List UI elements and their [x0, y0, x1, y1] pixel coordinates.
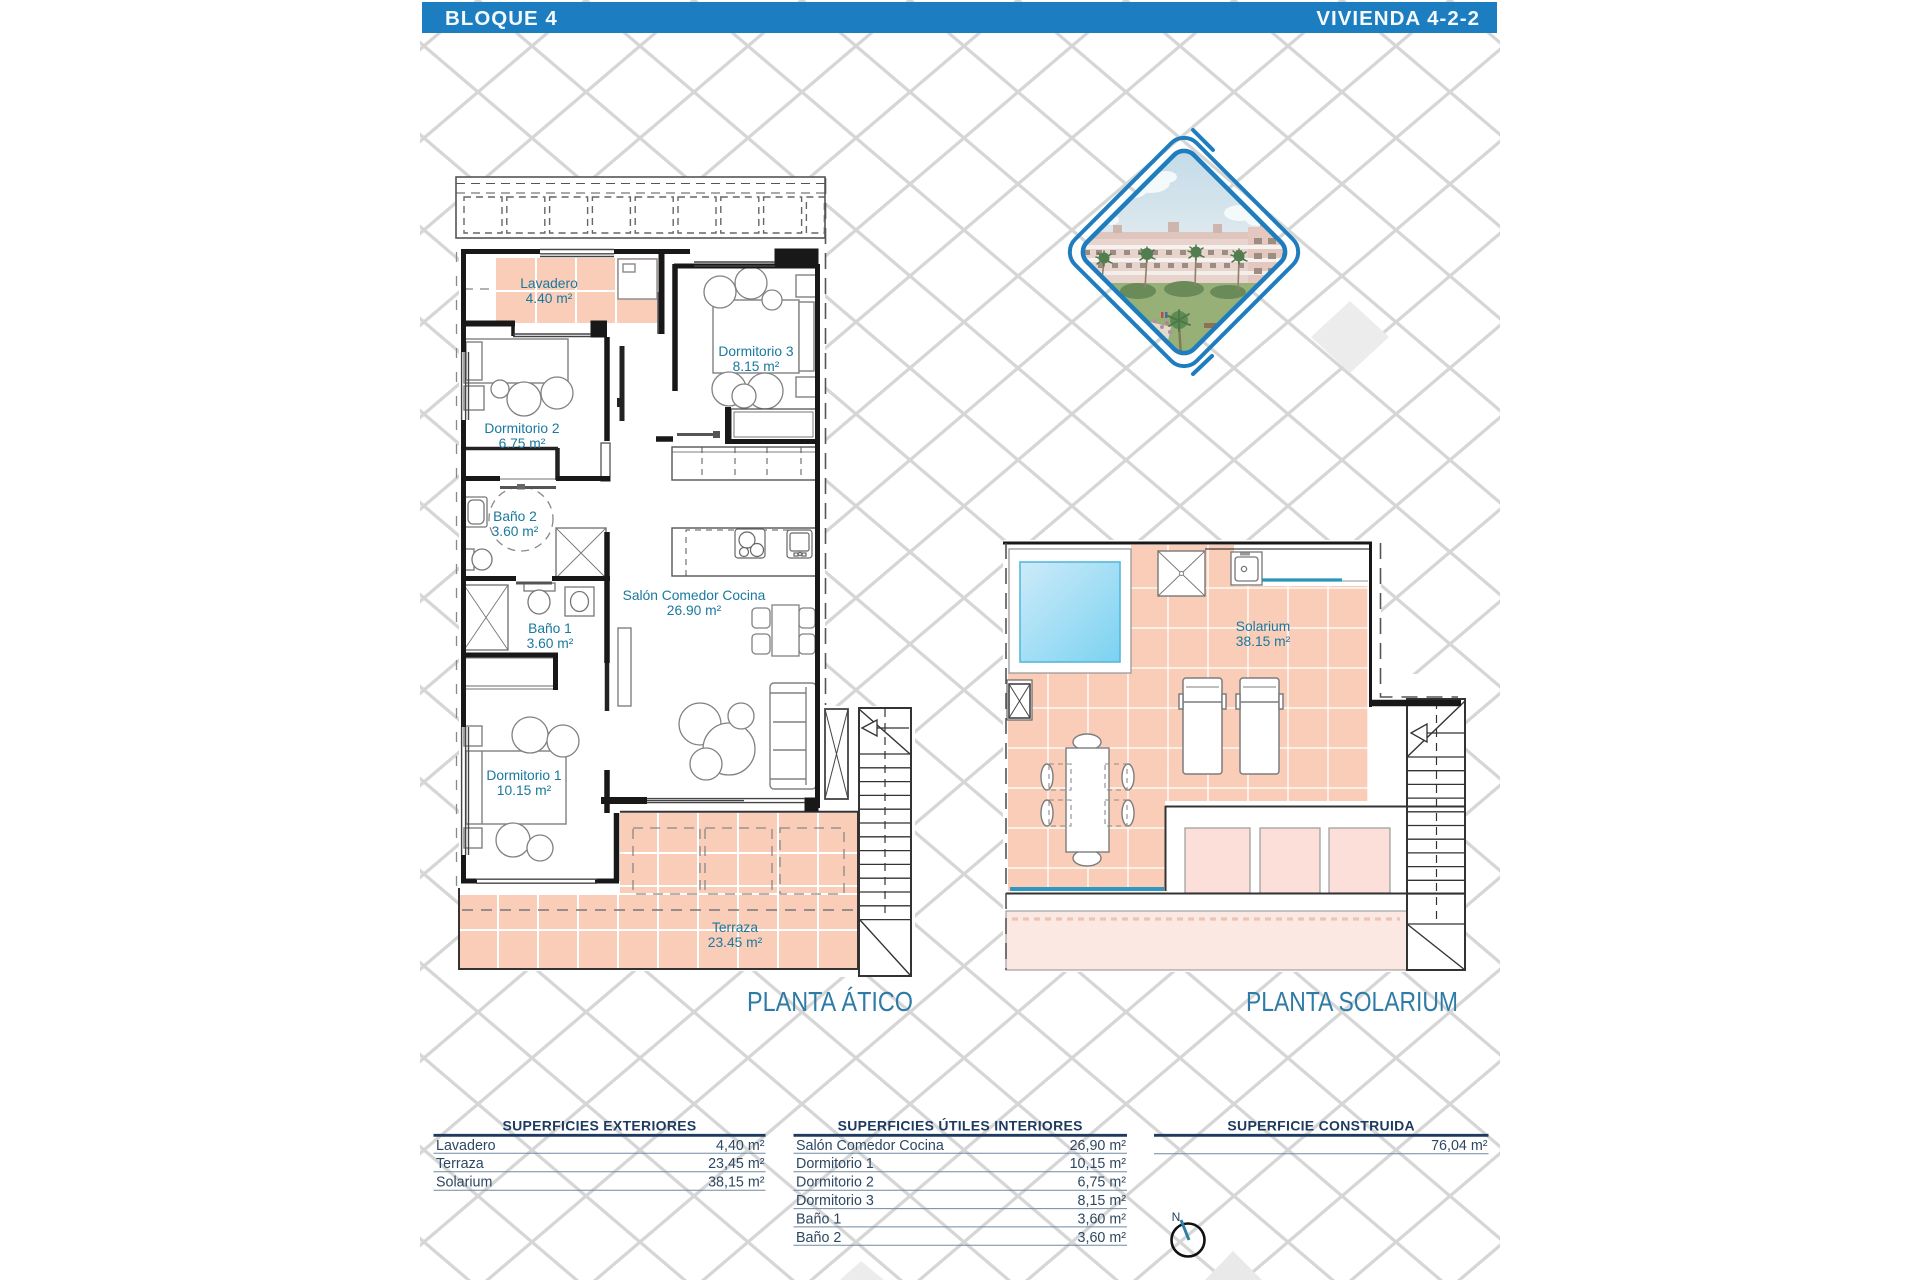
svg-text:Baño 2: Baño 2 — [796, 1230, 841, 1246]
svg-text:PLANTA ÁTICO: PLANTA ÁTICO — [747, 986, 913, 1017]
svg-text:Salón Comedor Cocina: Salón Comedor Cocina — [623, 588, 766, 603]
svg-text:3,60 m²: 3,60 m² — [1078, 1211, 1127, 1227]
svg-text:8,15 m²: 8,15 m² — [1078, 1193, 1127, 1209]
svg-text:SUPERFICIES ÚTILES INTERIORES: SUPERFICIES ÚTILES INTERIORES — [838, 1117, 1083, 1134]
svg-text:Dormitorio 3: Dormitorio 3 — [796, 1193, 874, 1209]
svg-text:6.75 m²: 6.75 m² — [499, 436, 546, 451]
svg-text:Solarium: Solarium — [1236, 619, 1290, 634]
svg-text:Dormitorio 2: Dormitorio 2 — [796, 1175, 874, 1191]
svg-text:SUPERFICIES EXTERIORES: SUPERFICIES EXTERIORES — [502, 1118, 696, 1134]
svg-text:Baño 2: Baño 2 — [493, 509, 537, 524]
svg-text:4,40 m²: 4,40 m² — [716, 1138, 765, 1154]
svg-text:SUPERFICIE CONSTRUIDA: SUPERFICIE CONSTRUIDA — [1227, 1118, 1415, 1134]
svg-text:Dormitorio 1: Dormitorio 1 — [796, 1156, 874, 1172]
svg-text:10,15 m²: 10,15 m² — [1070, 1156, 1127, 1172]
svg-text:26.90 m²: 26.90 m² — [667, 603, 722, 618]
svg-text:3.60 m²: 3.60 m² — [527, 636, 574, 651]
svg-text:Baño 1: Baño 1 — [796, 1211, 841, 1227]
svg-text:10.15 m²: 10.15 m² — [497, 783, 552, 798]
svg-text:3,60 m²: 3,60 m² — [1078, 1230, 1127, 1246]
svg-text:38.15 m²: 38.15 m² — [1236, 634, 1291, 649]
svg-text:Terraza: Terraza — [436, 1156, 484, 1172]
svg-text:4.40 m²: 4.40 m² — [526, 291, 573, 306]
svg-text:VIVIENDA 4-2-2: VIVIENDA 4-2-2 — [1316, 7, 1480, 30]
svg-text:Dormitorio 1: Dormitorio 1 — [486, 768, 561, 783]
svg-text:Lavadero: Lavadero — [520, 276, 578, 291]
svg-text:38,15 m²: 38,15 m² — [708, 1175, 765, 1191]
svg-text:3.60 m²: 3.60 m² — [492, 524, 539, 539]
svg-text:Salón Comedor Cocina: Salón Comedor Cocina — [796, 1138, 944, 1154]
svg-text:23,45 m²: 23,45 m² — [708, 1156, 765, 1172]
svg-text:Lavadero: Lavadero — [436, 1138, 496, 1154]
svg-text:Baño 1: Baño 1 — [528, 621, 572, 636]
svg-text:PLANTA SOLARIUM: PLANTA SOLARIUM — [1246, 986, 1458, 1017]
svg-text:Terraza: Terraza — [712, 920, 758, 935]
svg-text:76,04 m²: 76,04 m² — [1431, 1138, 1488, 1154]
svg-text:Dormitorio 2: Dormitorio 2 — [484, 421, 559, 436]
svg-text:8.15 m²: 8.15 m² — [733, 359, 780, 374]
svg-text:6,75 m²: 6,75 m² — [1078, 1175, 1127, 1191]
svg-text:Dormitorio 3: Dormitorio 3 — [718, 344, 793, 359]
svg-text:26,90 m²: 26,90 m² — [1070, 1138, 1127, 1154]
svg-text:Solarium: Solarium — [436, 1175, 492, 1191]
svg-text:BLOQUE 4: BLOQUE 4 — [445, 7, 558, 30]
svg-text:N: N — [1172, 1210, 1181, 1224]
svg-text:23.45 m²: 23.45 m² — [708, 935, 763, 950]
